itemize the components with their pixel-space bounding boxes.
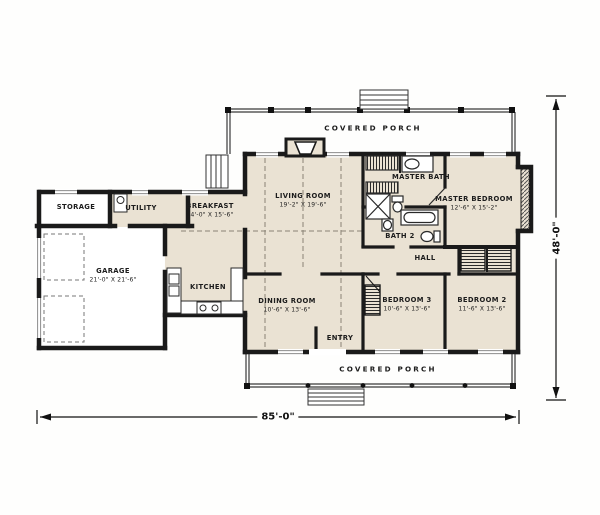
- room-dims-bedroom3: 10'-6" X 13'-6": [384, 306, 431, 313]
- bay-window-wall: [521, 169, 530, 229]
- room-label-living: LIVING ROOM: [275, 192, 331, 200]
- floor-plan: STORAGE UTILITY BREAKFAST 14'-0" X 15'-6…: [0, 0, 600, 515]
- room-fills: [40, 154, 531, 352]
- room-label-utility: UTILITY: [125, 204, 157, 212]
- room-label-kitchen: KITCHEN: [190, 283, 226, 291]
- room-label-master-bath: MASTER BATH: [392, 173, 450, 181]
- room-dims-master-bedroom: 12'-6" X 15'-2": [451, 205, 498, 212]
- overall-height-dimension: 48'-0": [552, 217, 563, 258]
- porch-label-bottom: COVERED PORCH: [339, 365, 436, 374]
- room-label-bath2: BATH 2: [385, 232, 414, 240]
- front-steps-bottom: [308, 389, 364, 405]
- fireplace: [286, 139, 324, 156]
- room-dims-dining: 10'-6" X 13'-6": [264, 307, 311, 314]
- room-dims-bedroom2: 11'-6" X 13'-6": [459, 306, 506, 313]
- room-label-hall: HALL: [414, 254, 435, 262]
- room-label-master-bedroom: MASTER BEDROOM: [435, 195, 513, 203]
- overall-width-dimension: 85'-0": [257, 412, 298, 423]
- room-dims-living: 19'-2" X 19'-6": [280, 202, 327, 209]
- room-label-bedroom3: BEDROOM 3: [382, 296, 431, 304]
- plan-linework: [0, 0, 600, 515]
- room-label-bedroom2: BEDROOM 2: [457, 296, 506, 304]
- porch-label-top: COVERED PORCH: [324, 124, 421, 133]
- room-dims-breakfast: 14'-0" X 15'-6": [187, 212, 234, 219]
- front-steps-top: [360, 90, 408, 109]
- room-label-garage: GARAGE: [96, 267, 130, 275]
- room-label-dining: DINING ROOM: [258, 297, 315, 305]
- room-dims-garage: 21'-0" X 21'-6": [90, 277, 137, 284]
- room-label-storage: STORAGE: [57, 203, 95, 211]
- side-steps-left: [206, 155, 228, 188]
- room-label-breakfast: BREAKFAST: [186, 202, 233, 210]
- room-label-entry: ENTRY: [327, 334, 354, 342]
